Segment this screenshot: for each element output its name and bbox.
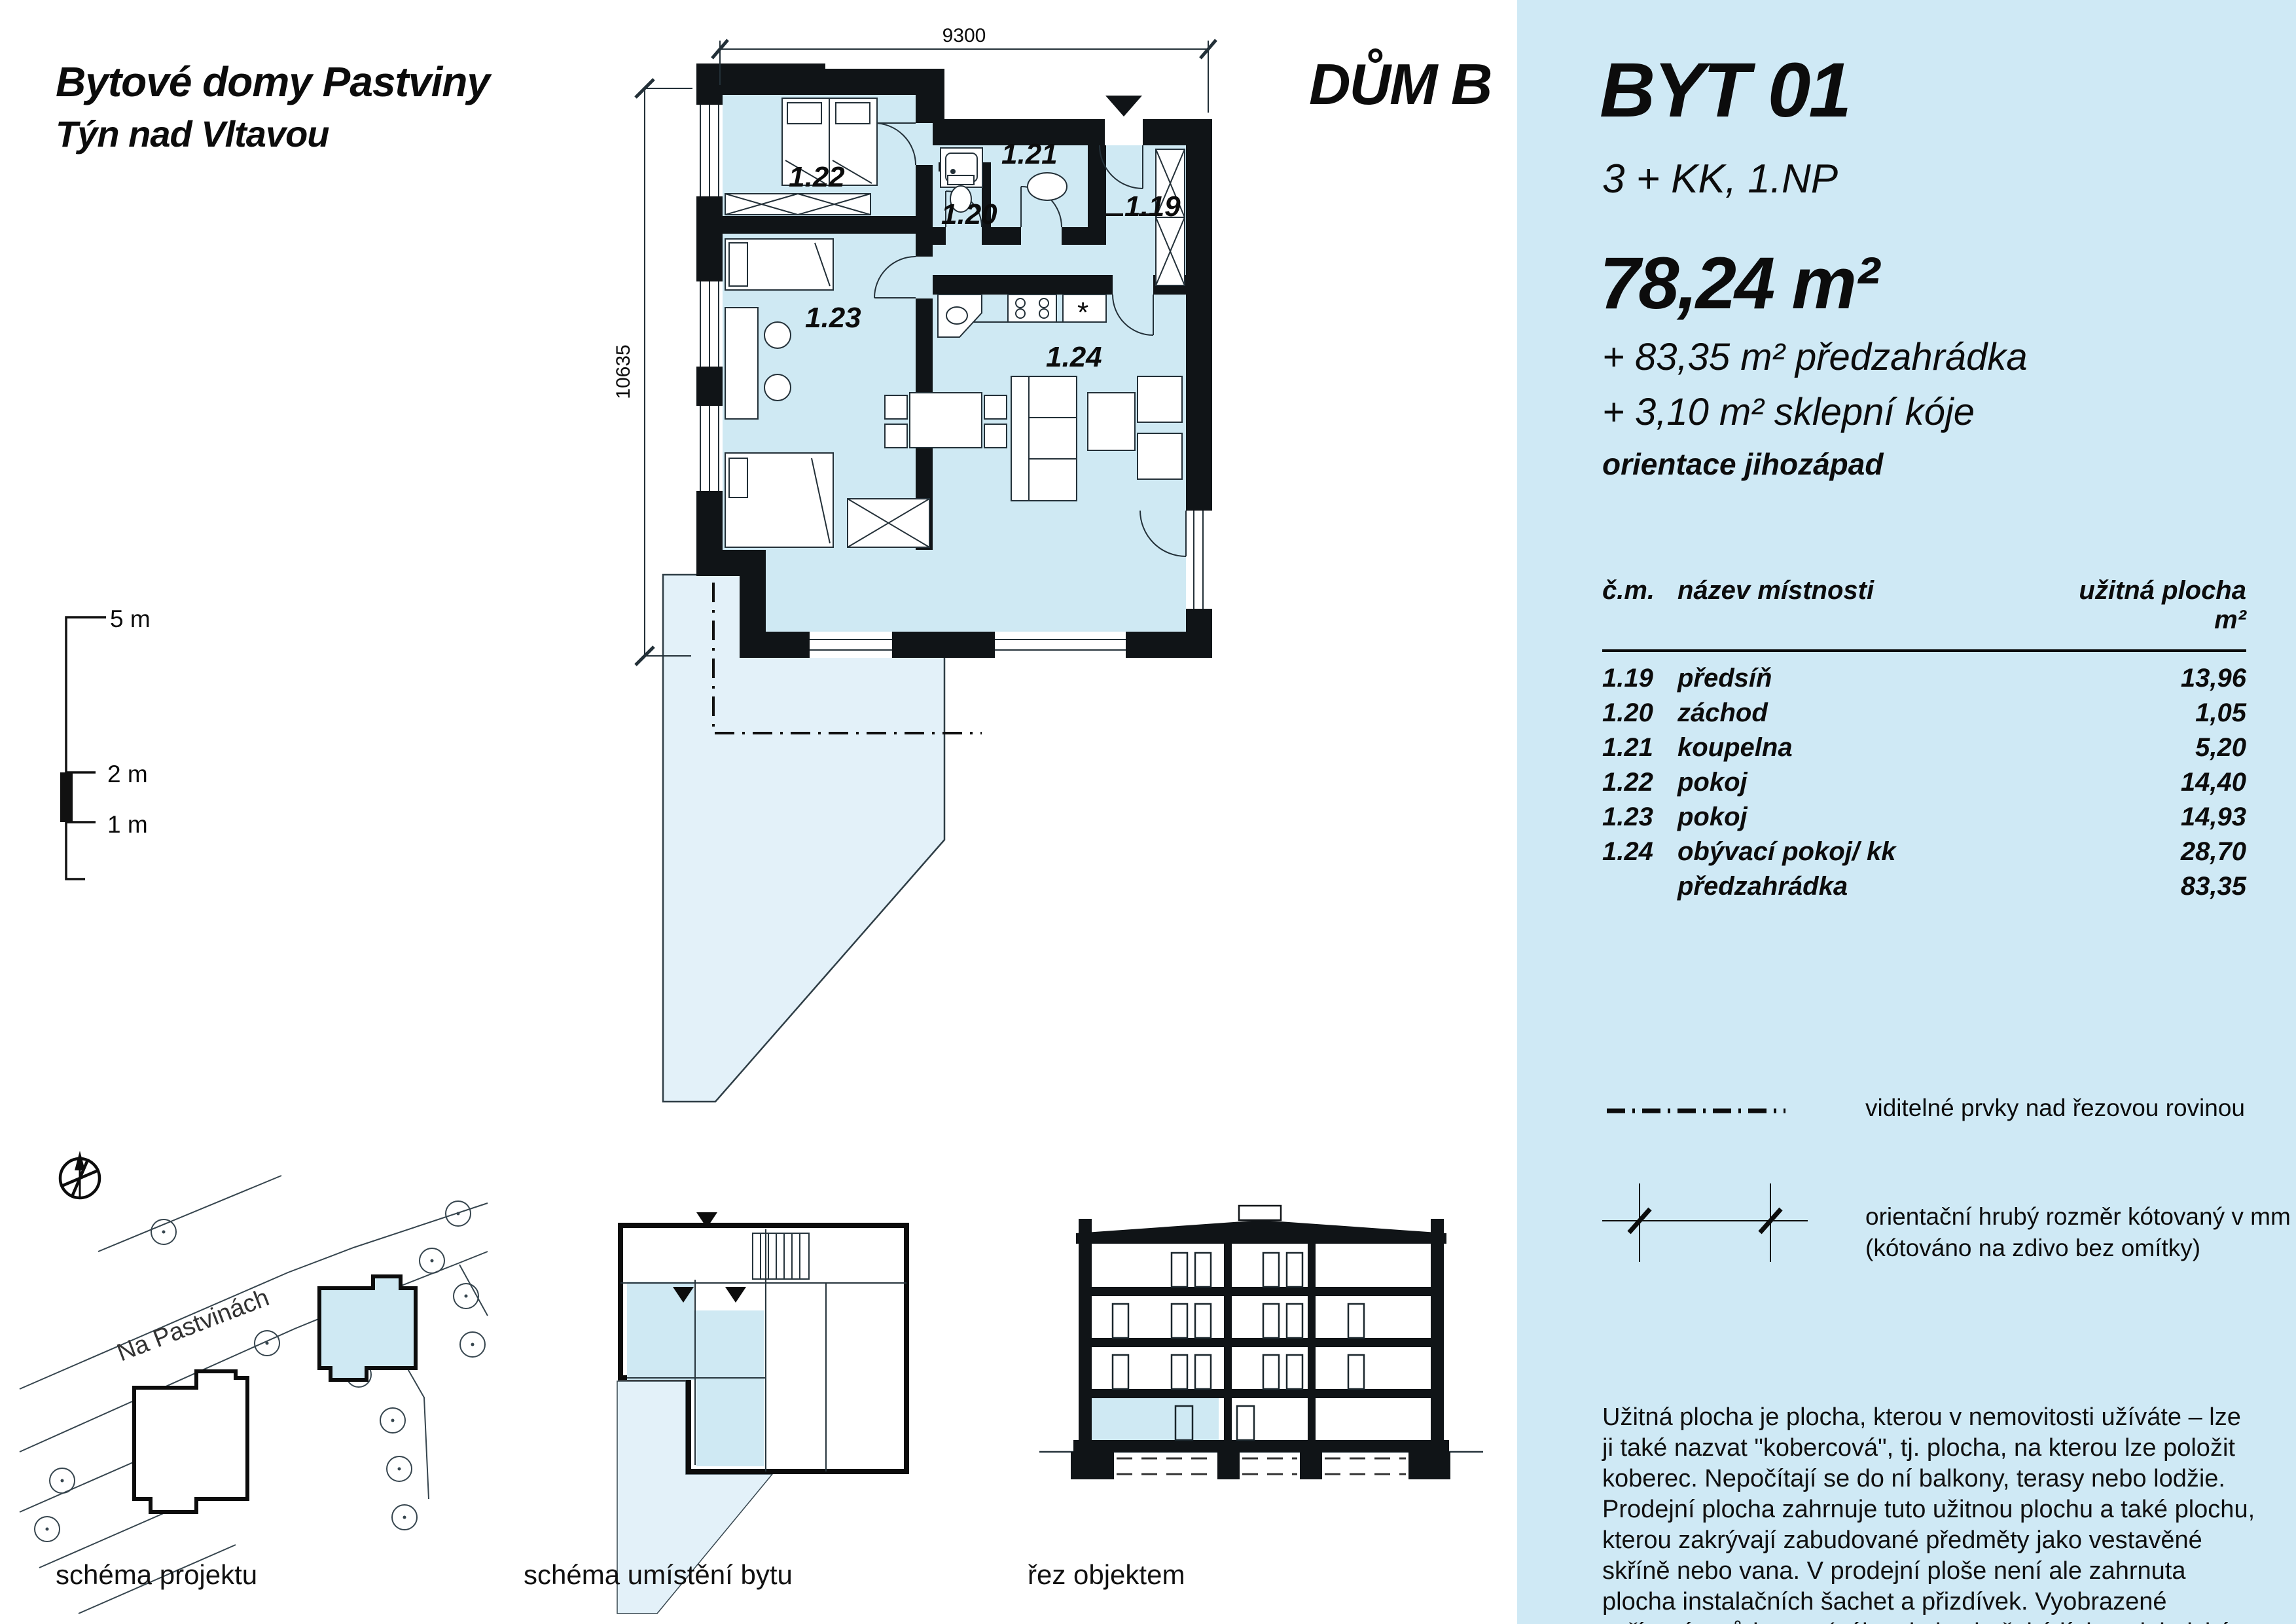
cell-area: 5,20 — [2060, 733, 2246, 763]
table-row: 1.24 obývací pokoj/ kk 28,70 — [1602, 832, 2246, 867]
cell-name: pokoj — [1677, 768, 2060, 797]
table-row: 1.20 záchod 1,05 — [1602, 693, 2246, 728]
cell-area: 28,70 — [2060, 837, 2246, 867]
legend-symbols — [1602, 1111, 1808, 1262]
cell-name: předsíň — [1677, 664, 2060, 693]
building-section — [1039, 1206, 1483, 1479]
flat-orientation: orientace jihozápad — [1602, 446, 1883, 482]
col-header-name: název místnosti — [1677, 576, 2060, 635]
flat-area-main: 78,24 m² — [1600, 241, 1877, 325]
scale-bar: 5 m 2 m 1 m — [60, 605, 151, 879]
table-row: 1.19 předsíň 13,96 — [1602, 659, 2246, 693]
legend-item-2-label-line2: (kótováno na zdivo bez omítky) — [1865, 1235, 2200, 1262]
caption-unit-location: schéma umístění bytu — [524, 1559, 793, 1591]
room-label-123: 1.23 — [805, 302, 861, 334]
cell-name: předzahrádka — [1677, 872, 2060, 901]
legend-item-2-label: orientační hrubý rozměr kótovaný v mm — [1865, 1203, 2291, 1231]
section-foundation-dashes — [1117, 1458, 1406, 1474]
room-label-121: 1.21 — [1001, 138, 1058, 170]
site-plan: Na Pastvinách — [20, 1151, 488, 1614]
entrance-arrow-icon — [1105, 96, 1142, 117]
cell-name: koupelna — [1677, 733, 2060, 763]
site-roads — [20, 1176, 488, 1614]
caption-site-plan: schéma projektu — [56, 1559, 257, 1591]
cell-number: 1.23 — [1602, 803, 1677, 832]
cell-number: 1.19 — [1602, 664, 1677, 693]
table-row: 1.23 pokoj 14,93 — [1602, 797, 2246, 832]
cell-number: 1.24 — [1602, 837, 1677, 867]
scale-bar-solid-segment — [60, 772, 73, 822]
cell-area: 14,40 — [2060, 768, 2246, 797]
building-label: DŮM B — [1309, 51, 1491, 118]
cell-area: 14,93 — [2060, 803, 2246, 832]
site-trees — [35, 1201, 485, 1542]
plan-sheet: 5 m 2 m 1 m — [0, 0, 2296, 1624]
flat-area-garden: + 83,35 m² předzahrádka — [1602, 335, 2028, 379]
room-label-124: 1.24 — [1046, 341, 1102, 373]
legend-item-1-label: viditelné prvky nad řezovou rovinou — [1865, 1094, 2245, 1122]
scale-label-1m: 1 m — [107, 811, 148, 838]
cell-number: 1.21 — [1602, 733, 1677, 763]
table-row: předzahrádka 83,35 — [1602, 867, 2246, 901]
section-structure — [1071, 1219, 1450, 1479]
site-building-highlighted — [319, 1276, 416, 1380]
col-header-number: č.m. — [1602, 576, 1677, 635]
cell-number: 1.20 — [1602, 698, 1677, 728]
street-label: Na Pastvinách — [113, 1284, 273, 1367]
room-label-119: 1.19 — [1124, 190, 1181, 223]
flat-area-cellar: + 3,10 m² sklepní kóje — [1602, 390, 1975, 434]
table-row: 1.21 koupelna 5,20 — [1602, 728, 2246, 763]
cell-name: obývací pokoj/ kk — [1677, 837, 2060, 867]
dimension-symbol — [1602, 1183, 1808, 1262]
entrance-opening — [1105, 119, 1143, 145]
scale-label-2m: 2 m — [107, 761, 148, 787]
compass-icon — [60, 1151, 99, 1198]
dishwasher-symbol: * — [1077, 297, 1088, 329]
cell-number: 1.22 — [1602, 768, 1677, 797]
cell-area: 13,96 — [2060, 664, 2246, 693]
cell-name: pokoj — [1677, 803, 2060, 832]
dimension-height-label: 10635 — [613, 344, 634, 399]
scale-label-5m: 5 m — [110, 605, 151, 632]
project-title: Bytové domy Pastviny — [56, 58, 490, 106]
room-table-header: č.m. název místnosti užitná plocha m² — [1602, 576, 2246, 652]
col-header-area: užitná plocha m² — [2060, 576, 2246, 635]
room-label-122: 1.22 — [789, 161, 845, 193]
cell-area: 1,05 — [2060, 698, 2246, 728]
unit-location-plan — [617, 1212, 906, 1614]
usable-area-note: Užitná plocha je plocha, kterou v nemovi… — [1602, 1402, 2257, 1624]
dimension-width-label: 9300 — [942, 25, 986, 46]
cell-name: záchod — [1677, 698, 2060, 728]
section-rooftop — [1239, 1206, 1281, 1220]
project-subtitle: Týn nad Vltavou — [56, 113, 329, 155]
cell-area: 83,35 — [2060, 872, 2246, 901]
flat-id: BYT 01 — [1600, 46, 1850, 135]
room-table: č.m. název místnosti užitná plocha m² 1.… — [1602, 576, 2246, 901]
table-row: 1.22 pokoj 14,40 — [1602, 763, 2246, 797]
room-label-120: 1.20 — [941, 198, 997, 230]
caption-section: řez objektem — [1028, 1559, 1185, 1591]
section-highlighted-flat — [1092, 1398, 1219, 1440]
site-building-other — [134, 1371, 247, 1512]
flat-layout: 3 + KK, 1.NP — [1602, 156, 1838, 202]
main-floor-plan: * 1.22 1.20 1.21 1.19 1.23 1.24 — [613, 25, 1216, 1102]
